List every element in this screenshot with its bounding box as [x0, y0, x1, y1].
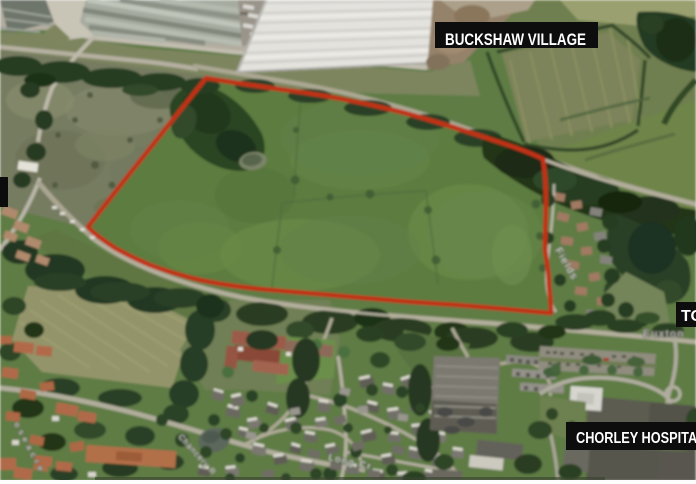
svg-text:BUCKSHAW VILLAGE: BUCKSHAW VILLAGE — [445, 31, 586, 49]
svg-text:Euxton: Euxton — [643, 328, 685, 340]
svg-text:TO: TO — [681, 308, 696, 325]
svg-text:CHORLEY HOSPITAL: CHORLEY HOSPITAL — [576, 430, 696, 447]
